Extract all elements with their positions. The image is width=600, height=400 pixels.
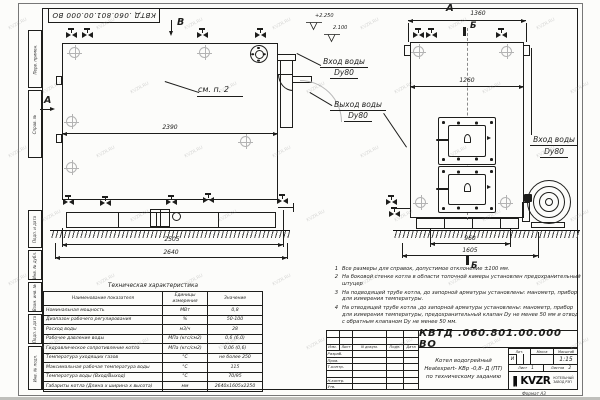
- door-pin: [436, 139, 449, 141]
- table-cell: Габариты котла (Длина х ширина х высота): [44, 381, 162, 391]
- sign-role: Н.контр.: [326, 377, 352, 384]
- tech-table-title: Техническая характеристика: [43, 283, 263, 289]
- table-cell: Температура воды (Вход/Выход): [44, 372, 162, 382]
- sheets-cell: Листов 2: [543, 364, 578, 371]
- valve-icon: [389, 211, 400, 218]
- frame-field-vzam-inv: Взам. инв. №: [28, 282, 42, 312]
- sheet-label: Лист: [518, 366, 527, 370]
- frame-field-label: Инв. № подл.: [33, 354, 38, 382]
- drawing-title-line1: Котел водогрейный: [435, 358, 492, 364]
- water-outlet-dn: Dy80: [344, 111, 372, 122]
- table-cell: МВт: [162, 305, 207, 315]
- door-pin: [436, 188, 449, 190]
- table-cell: Температура уходящих газов: [44, 353, 162, 363]
- frame-field-podp-data-2: Подп. и дата: [28, 314, 42, 344]
- note-number: 4: [329, 305, 338, 326]
- valve-icon: [255, 32, 266, 39]
- valve-icon: [66, 32, 77, 39]
- furnace-door-upper: [438, 117, 496, 165]
- tech-col-header: Значение: [207, 292, 262, 305]
- frame-field-sprav-no: Справ. №: [28, 90, 42, 158]
- drawing-sheet: Перв. примен. Справ. № Подп. и дата Инв.…: [0, 0, 600, 400]
- table-cell: °С: [162, 362, 207, 372]
- sign-role: Т.контр.: [326, 363, 352, 370]
- note-item: 3На подводящей трубе котла, до запорной …: [329, 290, 581, 304]
- frame-field-podp-data-1: Подп. и дата: [28, 210, 42, 248]
- position-mark-icon: [69, 47, 80, 58]
- signature-grid: Разраб. Пров. Т.контр. Н.контр. Утв.: [326, 350, 418, 390]
- sign-role: Утв.: [326, 383, 352, 390]
- flue-duct: [280, 60, 293, 128]
- sign-role: Пров.: [326, 357, 352, 364]
- drain-pipe: [278, 207, 294, 208]
- position-mark-icon: [66, 162, 77, 173]
- frame-field-label: Подп. и дата: [33, 215, 38, 242]
- drain-pipe-cap: [293, 203, 294, 212]
- frame-field-perv-primen: Перв. примен.: [28, 30, 42, 88]
- note-number: 1: [329, 266, 338, 273]
- top-stamp-box: КВТД .060.801.00.000 ВО: [48, 8, 160, 23]
- water-inlet-dn: Dy80: [330, 68, 358, 79]
- table-cell: Номинальная мощность: [44, 305, 162, 315]
- table-cell: Рабочее давление воды: [44, 334, 162, 344]
- dim-line-2505: [62, 244, 283, 245]
- note-text: На отводящей трубе котла ,до запорной ар…: [342, 305, 581, 326]
- sign-role: Разраб.: [326, 350, 352, 357]
- table-cell: Диапазон рабочего регулирования: [44, 315, 162, 325]
- company-name: КОТЕЛЬНЫЙ ЗАВОД РЭП: [553, 377, 573, 385]
- callout-underline: [197, 96, 243, 97]
- water-outlet-label: Выход воды: [330, 100, 386, 111]
- dim-line-2640: [55, 257, 287, 258]
- table-cell: 0,8: [207, 305, 262, 315]
- boiler-side-body: [62, 43, 278, 200]
- fan-base: [531, 222, 565, 228]
- water-inlet-dn-right: Dy80: [540, 147, 568, 158]
- valve-icon: [166, 199, 177, 206]
- dim-label-1605: 1605: [440, 248, 500, 254]
- revision-grid: [326, 330, 418, 344]
- table-cell: 0,6 (6,0): [207, 334, 262, 344]
- section-mark-top: [463, 27, 466, 36]
- side-base-frame: [66, 212, 276, 228]
- frame-field-inv-podl: Инв. № подл.: [28, 346, 42, 390]
- view-arrow-b: [171, 20, 172, 31]
- dim-label-1360: 1360: [458, 11, 498, 17]
- tech-col-header: Наименование показателя: [44, 292, 162, 305]
- table-cell: 28: [207, 324, 262, 334]
- callout-text: см. п. 2: [198, 85, 229, 94]
- inlet-leader-right: [531, 48, 532, 135]
- sign-role: [326, 370, 352, 377]
- position-mark-icon: [240, 136, 251, 147]
- elevation-lower-value: 2.100: [333, 25, 347, 31]
- scale-value: 1:15: [553, 354, 578, 364]
- dim-label-960: 960: [440, 236, 500, 242]
- extension-line: [408, 23, 409, 42]
- note-number: 2: [329, 274, 338, 288]
- position-mark-icon: [413, 46, 424, 57]
- table-cell: 0,06 (0,6): [207, 343, 262, 353]
- dim-line-960: [430, 243, 510, 244]
- table-cell: 50-100: [207, 315, 262, 325]
- water-inlet-label: Вход воды: [320, 57, 368, 68]
- section-letter-top: Б: [470, 21, 476, 31]
- position-mark-icon: [501, 46, 512, 57]
- valve-icon: [203, 197, 214, 204]
- dim-line-1605: [402, 255, 538, 256]
- table-cell: %: [162, 315, 207, 325]
- drawing-title: Котел водогрейный Heatexpert- КВр -0,8- …: [418, 348, 508, 390]
- base-rib: [118, 213, 119, 227]
- sheet-cell: Лист 1: [508, 364, 543, 371]
- table-cell: Максимальная рабочая температура воды: [44, 362, 162, 372]
- tech-col-header: Единицы измерения: [162, 292, 207, 305]
- base-rib: [444, 219, 445, 228]
- top-stamp-number: КВТД .060.801.00.000 ВО: [52, 11, 156, 20]
- table-cell: МПа (кгс/см2): [162, 343, 207, 353]
- base-rib: [218, 213, 219, 227]
- format-label: Формат А3: [494, 391, 574, 396]
- position-mark-icon: [500, 197, 511, 208]
- table-cell: МПа (кгс/см2): [162, 334, 207, 344]
- dim-line-1260: [410, 86, 524, 87]
- section-mark-bottom: [466, 256, 469, 265]
- valve-icon: [496, 32, 507, 39]
- fan-icon: [545, 198, 553, 206]
- table-cell: Расход воды: [44, 324, 162, 334]
- dim-label-2640: 2640: [131, 250, 211, 256]
- front-side-tab: [523, 45, 530, 56]
- door-hinge: [487, 136, 491, 140]
- valve-icon: [63, 199, 74, 206]
- frame-field-label: Справ. №: [33, 114, 38, 133]
- valve-icon: [197, 32, 208, 39]
- base-rib: [500, 219, 501, 228]
- tech-table: Наименование показателя Единицы измерени…: [43, 291, 263, 392]
- extension-line: [510, 229, 511, 247]
- furnace-door-lower: [438, 166, 496, 213]
- table-cell: м3/ч: [162, 324, 207, 334]
- front-side-tab: [404, 45, 411, 56]
- frame-field-inv-dubl: Инв. № дубл.: [28, 250, 42, 280]
- extension-line: [538, 232, 539, 258]
- lit-divider: [523, 354, 524, 364]
- table-cell: 115: [207, 362, 262, 372]
- door-handle: [464, 183, 471, 192]
- position-mark-icon: [66, 116, 77, 127]
- notes-list: 1Все размеры для справок, допустимое отк…: [329, 266, 581, 325]
- scan-edge-bottom: [0, 397, 600, 400]
- valve-icon: [100, 200, 111, 207]
- note-item: 4На отводящей трубе котла ,до запорной а…: [329, 305, 581, 326]
- base-rib: [472, 219, 473, 228]
- flange-icon: [250, 45, 268, 63]
- valve-icon: [82, 32, 93, 39]
- note-item: 1Все размеры для справок, допустимое отк…: [329, 266, 581, 273]
- table-cell: не более 250: [207, 353, 262, 363]
- valve-icon: [277, 198, 288, 205]
- base-rib: [156, 213, 157, 227]
- water-inlet-label-right: Вход воды: [530, 135, 578, 146]
- view-arrow-a: [40, 109, 50, 110]
- drawing-title-line3: по техническому заданию: [426, 374, 501, 380]
- drawing-title-line2: Heatexpert- КВр -0,8- Д (ПТ): [424, 366, 502, 372]
- view-letter-b: В: [177, 17, 184, 28]
- view-letter-a-front: А: [446, 3, 454, 14]
- frame-field-label: Перв. примен.: [33, 44, 38, 74]
- logo-text: KVZR: [520, 375, 550, 387]
- dim-label-1260: 1260: [437, 78, 497, 84]
- valve-icon: [426, 32, 437, 39]
- lit-value: И: [508, 354, 516, 364]
- sheets-value: 2: [568, 366, 571, 371]
- valve-icon: [386, 199, 397, 206]
- table-cell: °С: [162, 372, 207, 382]
- table-cell: 70/95: [207, 372, 262, 382]
- elevation-upper-value: +2.250: [315, 13, 334, 19]
- extension-line: [526, 23, 527, 42]
- side-lug-1: [56, 76, 62, 85]
- frame-field-label: Инв. № дубл.: [33, 251, 38, 278]
- note-text: На подводящей трубе котла, до запорной а…: [342, 290, 581, 304]
- sheet-value: 1: [531, 366, 534, 371]
- dim-line-2390: [62, 133, 278, 134]
- table-cell: Гидравлическое сопротивление котла: [44, 343, 162, 353]
- table-cell: мм: [162, 381, 207, 391]
- front-base-frame: [416, 218, 519, 229]
- table-cell: °С: [162, 353, 207, 363]
- company-name-line2: ЗАВОД РЭП: [553, 381, 573, 385]
- position-mark-icon: [415, 197, 426, 208]
- elevation-mark-icon: [306, 22, 322, 31]
- door-hinge: [487, 185, 491, 189]
- position-mark-icon: [199, 47, 210, 58]
- company-logo: KVZR КОТЕЛЬНЫЙ ЗАВОД РЭП: [508, 371, 578, 390]
- door-handle: [464, 134, 471, 143]
- note-text: Все размеры для справок, допустимое откл…: [342, 266, 509, 273]
- elevation-mark-icon: [324, 34, 340, 43]
- view-letter-a-side: А: [44, 95, 51, 106]
- valve-icon: [413, 32, 424, 39]
- sheets-label: Листов: [551, 366, 564, 370]
- dim-label-2390: 2390: [130, 125, 210, 131]
- dim-label-2505: 2505: [132, 237, 212, 243]
- note-number: 3: [329, 290, 338, 304]
- extension-line: [287, 243, 288, 259]
- logo-bars-icon: [513, 376, 517, 387]
- fan-motor: [524, 194, 532, 202]
- note-item: 2На боковой стенке котла в области топоч…: [329, 274, 581, 288]
- flue-flange: [277, 54, 296, 61]
- extension-line: [283, 210, 284, 247]
- doc-number: КВТД .060.801.00.000 ВО: [418, 330, 578, 348]
- fan-duct: [522, 202, 530, 222]
- table-cell: 2640х1605х2250: [207, 381, 262, 391]
- mass-value: [530, 354, 553, 364]
- lit-divider: [516, 354, 517, 364]
- note-text: На боковой стенке котла в области топочн…: [342, 274, 581, 288]
- dim-line-1360: [408, 20, 526, 21]
- frame-field-label: Взам. инв. №: [33, 283, 38, 310]
- frame-field-label: Подп. и дата: [33, 315, 38, 342]
